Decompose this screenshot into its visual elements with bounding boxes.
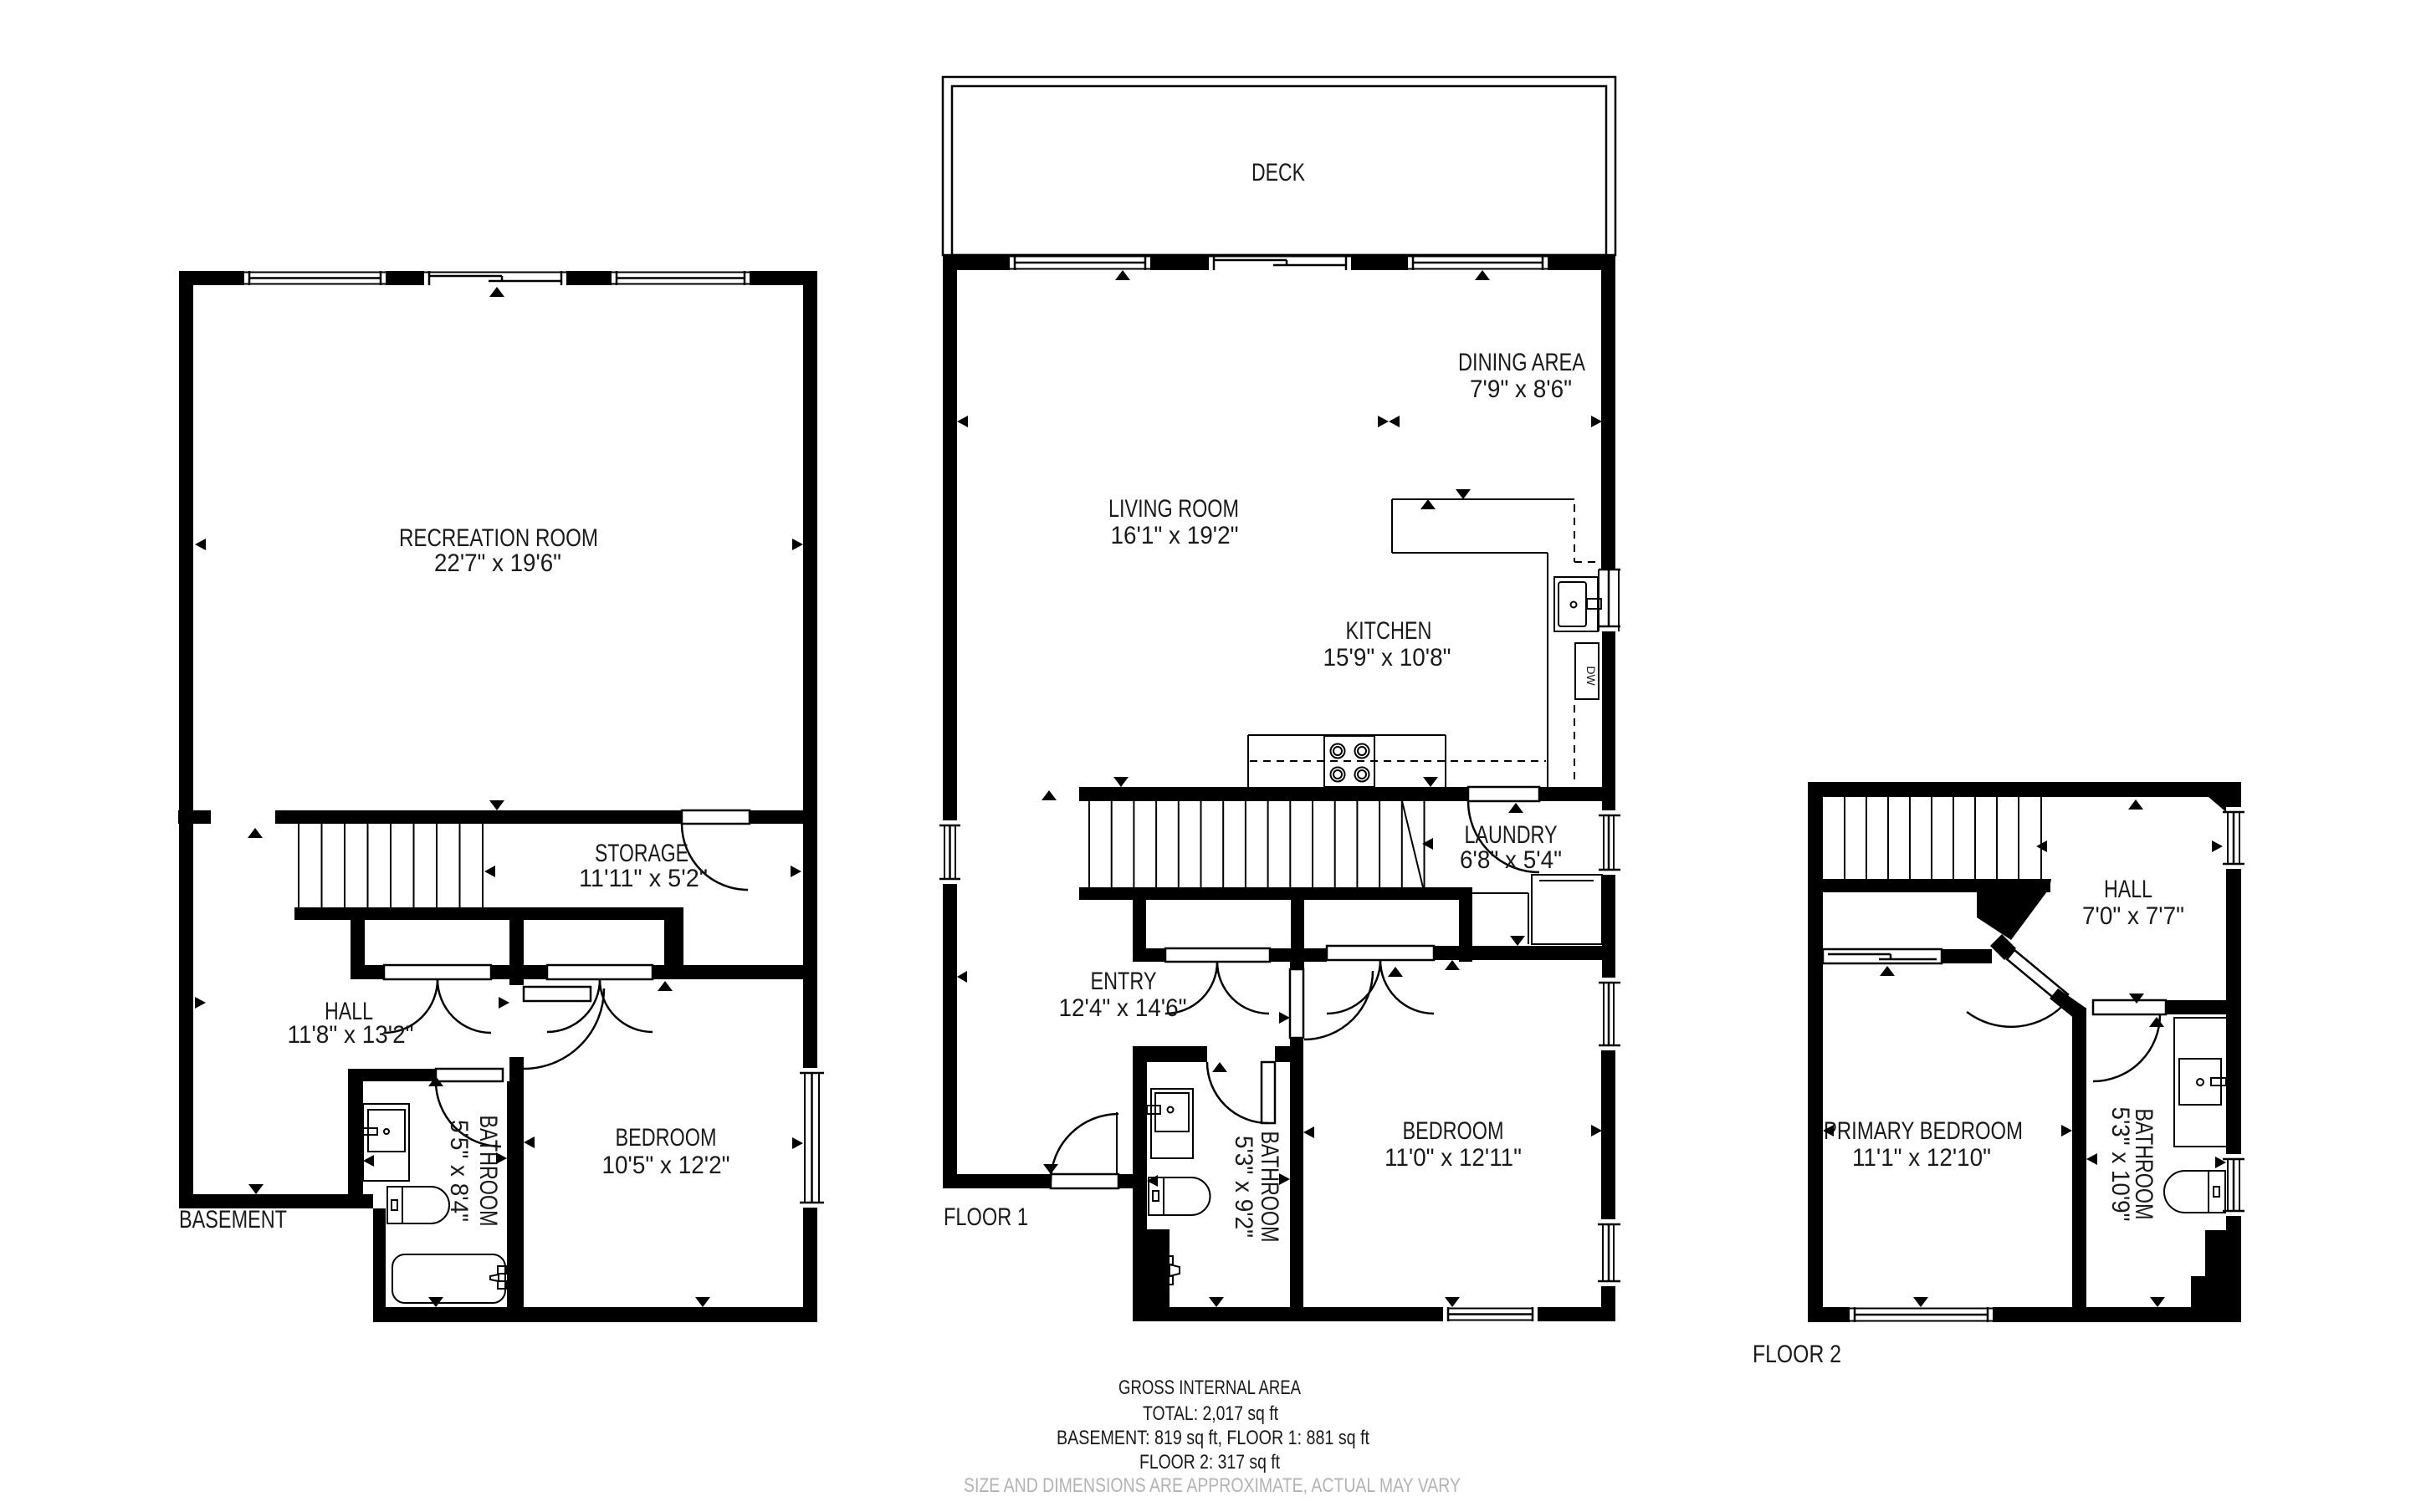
svg-text:KITCHEN: KITCHEN	[1346, 617, 1432, 645]
svg-text:15'9" x 10'8": 15'9" x 10'8"	[1323, 644, 1451, 672]
svg-text:11'1" x 12'10": 11'1" x 12'10"	[1852, 1144, 1991, 1172]
svg-text:HALL: HALL	[2104, 876, 2152, 903]
svg-text:10'5" x 12'2": 10'5" x 12'2"	[602, 1152, 730, 1179]
svg-text:12'4" x 14'6": 12'4" x 14'6"	[1059, 994, 1187, 1022]
svg-text:FLOOR 1: FLOOR 1	[944, 1203, 1028, 1231]
svg-text:LAUNDRY: LAUNDRY	[1465, 821, 1558, 849]
svg-text:DW: DW	[1584, 666, 1598, 686]
svg-text:7'9" x 8'6": 7'9" x 8'6"	[1470, 375, 1572, 403]
svg-text:GROSS INTERNAL AREA: GROSS INTERNAL AREA	[1118, 1377, 1301, 1399]
svg-text:DINING AREA: DINING AREA	[1458, 349, 1585, 376]
svg-text:LIVING ROOM: LIVING ROOM	[1108, 495, 1239, 523]
svg-text:FLOOR 2: FLOOR 2	[1753, 1341, 1841, 1368]
svg-text:11'0" x 12'11": 11'0" x 12'11"	[1385, 1144, 1522, 1172]
svg-text:7'0" x 7'7": 7'0" x 7'7"	[2082, 902, 2184, 930]
svg-text:BATHROOM5'3" x 10'9": BATHROOM5'3" x 10'9"	[2106, 1107, 2157, 1222]
svg-text:BASEMENT: 819 sq ft, FLOOR 1:: BASEMENT: 819 sq ft, FLOOR 1: 881 sq ft	[1057, 1427, 1369, 1449]
svg-text:SIZE AND DIMENSIONS ARE APPROX: SIZE AND DIMENSIONS ARE APPROXIMATE, ACT…	[964, 1474, 1461, 1497]
svg-text:STORAGE: STORAGE	[595, 840, 688, 867]
svg-text:PRIMARY BEDROOM: PRIMARY BEDROOM	[1824, 1117, 2023, 1145]
svg-text:6'8" x 5'4": 6'8" x 5'4"	[1460, 846, 1562, 874]
svg-text:DECK: DECK	[1251, 159, 1305, 186]
svg-text:FLOOR 2: 317 sq ft: FLOOR 2: 317 sq ft	[1139, 1451, 1280, 1474]
svg-text:TOTAL: 2,017 sq ft: TOTAL: 2,017 sq ft	[1143, 1402, 1278, 1425]
svg-text:BASEMENT: BASEMENT	[179, 1206, 287, 1234]
svg-text:22'7" x 19'6": 22'7" x 19'6"	[434, 549, 561, 577]
svg-text:RECREATION ROOM: RECREATION ROOM	[399, 524, 598, 552]
svg-text:BATHROOM5'3" x 9'2": BATHROOM5'3" x 9'2"	[1230, 1131, 1283, 1243]
svg-text:11'11" x 5'2": 11'11" x 5'2"	[579, 865, 708, 892]
svg-text:BEDROOM: BEDROOM	[616, 1124, 717, 1152]
svg-text:BEDROOM: BEDROOM	[1403, 1117, 1504, 1145]
svg-text:16'1" x 19'2": 16'1" x 19'2"	[1111, 522, 1239, 549]
svg-text:ENTRY: ENTRY	[1091, 968, 1157, 995]
svg-text:11'8" x 13'2": 11'8" x 13'2"	[288, 1021, 414, 1049]
